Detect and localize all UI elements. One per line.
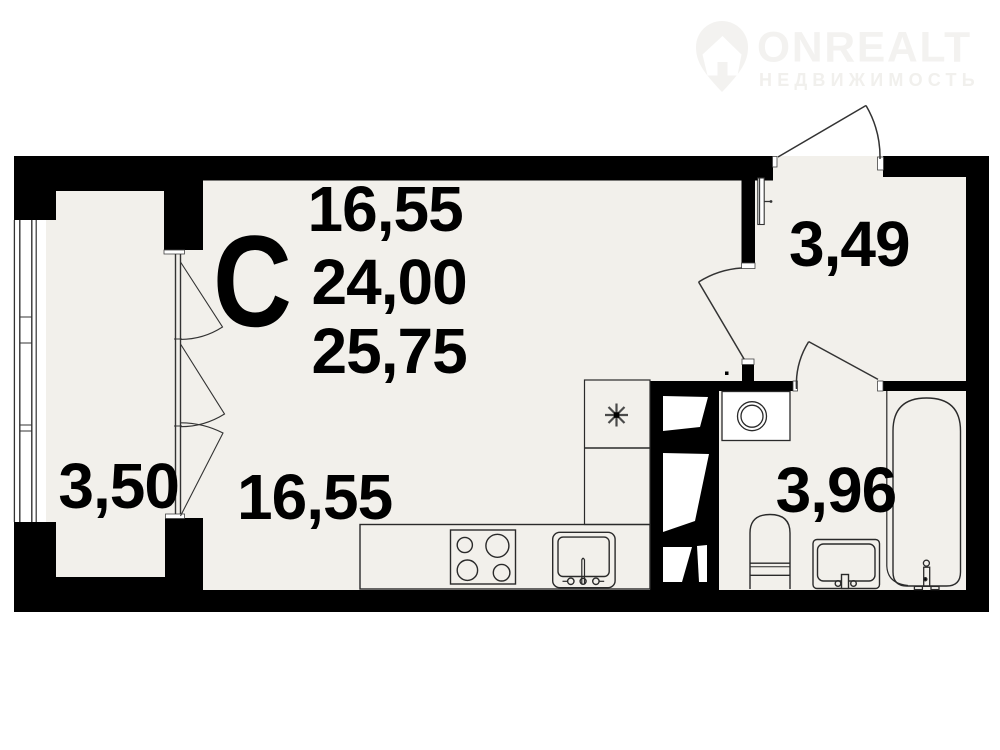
svg-text:ONREALT: ONREALT bbox=[757, 25, 972, 72]
svg-text:3,96: 3,96 bbox=[776, 454, 897, 526]
svg-text:3,50: 3,50 bbox=[58, 450, 179, 522]
svg-text:24,00: 24,00 bbox=[312, 246, 467, 318]
svg-text:25,75: 25,75 bbox=[312, 315, 467, 387]
svg-text:16,55: 16,55 bbox=[237, 461, 392, 533]
svg-text:С: С bbox=[213, 209, 292, 354]
svg-text:3,49: 3,49 bbox=[789, 208, 910, 280]
svg-text:16,55: 16,55 bbox=[308, 173, 463, 245]
svg-text:НЕДВИЖИМОСТЬ: НЕДВИЖИМОСТЬ bbox=[759, 70, 980, 90]
